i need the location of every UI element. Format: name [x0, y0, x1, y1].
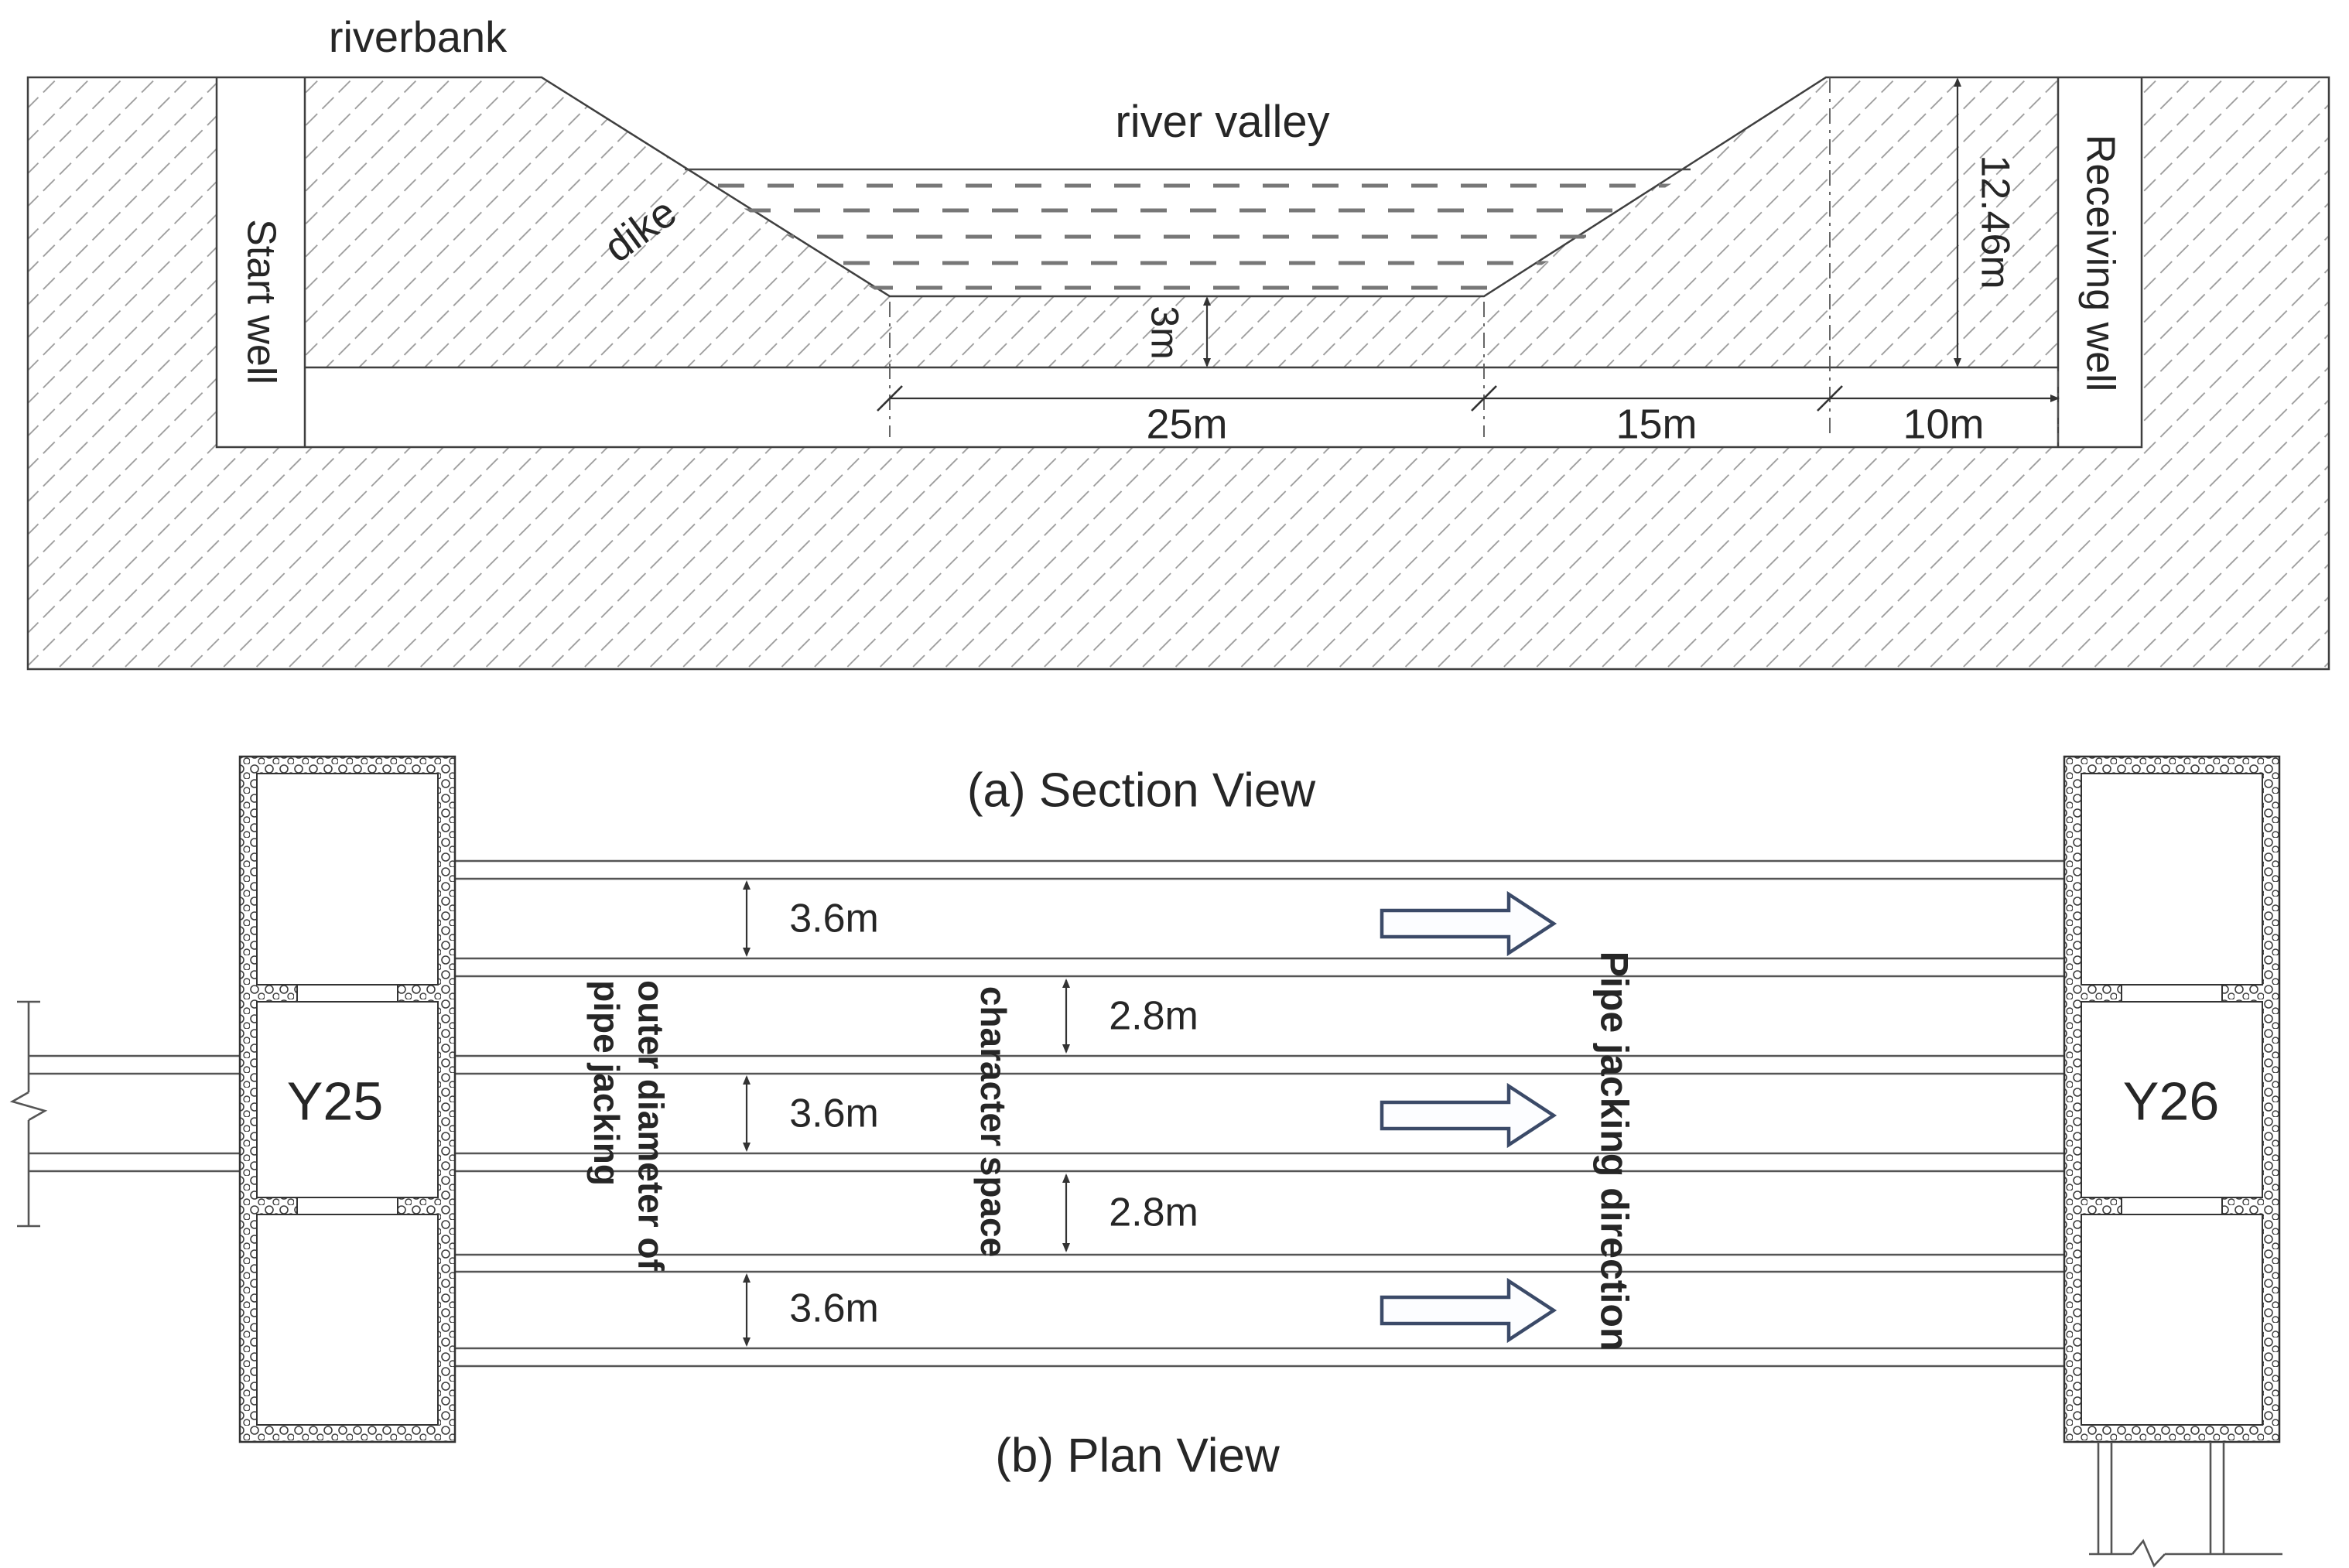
dim-10m-label: 10m [1903, 398, 1984, 451]
riverbank-label: riverbank [329, 10, 507, 64]
dim-space-label-2: 2.8m [1109, 1188, 1198, 1238]
block-arrow-icon [1382, 894, 1554, 953]
break-symbol-bottom [2132, 1541, 2165, 1566]
section-view-caption: (a) Section View [967, 760, 1315, 821]
divider-opening [2122, 985, 2222, 1002]
divider-opening [297, 985, 398, 1002]
dim-od-label-1: 3.6m [789, 894, 879, 945]
receiving-well-label: Receiving well [2075, 135, 2125, 391]
divider-opening [2122, 1197, 2222, 1214]
plan-view-caption: (b) Plan View [995, 1426, 1280, 1486]
dim-od-label-3: 3.6m [789, 1284, 879, 1334]
break-symbol-left [12, 1092, 45, 1120]
dim-1246-label: 12.46m [1970, 155, 2020, 289]
dim-3m-label: 3m [1140, 306, 1189, 359]
pipe-lines [455, 861, 2064, 1366]
start-well-label: Start well [236, 219, 286, 384]
left-pipe-stub [12, 1002, 240, 1226]
block-arrow-icon [1382, 1281, 1554, 1340]
character-space-note: character space [970, 986, 1015, 1257]
dim-25m-label: 25m [1146, 398, 1227, 451]
dim-15m-label: 15m [1616, 398, 1697, 451]
divider-opening [297, 1197, 398, 1214]
block-arrow-icon [1382, 1086, 1554, 1145]
shaft-y25-label: Y25 [287, 1068, 384, 1136]
dim-space-label-1: 2.8m [1109, 992, 1198, 1042]
dim-od-label-2: 3.6m [789, 1089, 879, 1139]
figure-page: riverbank dike river valley Start well R… [0, 0, 2349, 1568]
direction-block-arrows [1382, 894, 1554, 1340]
y26-lower-pipes [2089, 1442, 2282, 1566]
pipe-jacking-direction-note: Pipe jacking direction [1590, 951, 1639, 1351]
outer-diameter-note: outer diameter of pipe jacking [584, 980, 673, 1271]
river-valley-label: river valley [1115, 94, 1329, 151]
shaft-y26-label: Y26 [2123, 1068, 2220, 1136]
